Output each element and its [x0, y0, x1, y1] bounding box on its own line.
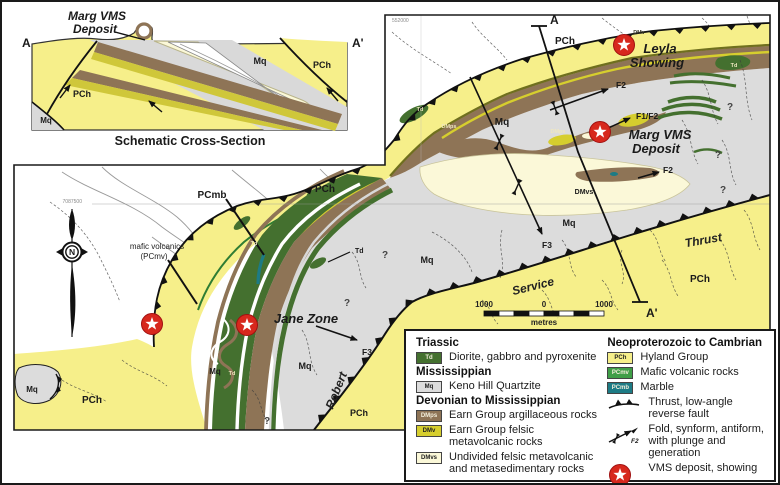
annotation-mafic-line1: mafic volcanics: [130, 242, 184, 251]
unit-label-pcmb: PCmb: [198, 190, 227, 201]
location-label-leyla-2: Showing: [630, 55, 684, 70]
pcmb-dot: [610, 172, 618, 176]
location-label-leyla-1: Leyla: [643, 41, 676, 56]
unit-label-pch-5: PCh: [350, 408, 368, 418]
annotation-mafic-line2: (PCmv): [140, 252, 167, 261]
legend: Triassic Td Diorite, gabbro and pyroxeni…: [404, 329, 776, 482]
legend-column-2: Neoproterozoic to Cambrian PCh Hyland Gr…: [607, 335, 770, 478]
unit-label-mq-4: Mq: [209, 367, 221, 376]
legend-item-pcmv: PCmv Mafic volcanic rocks: [607, 366, 770, 379]
unit-label-td-4: Td: [731, 63, 738, 69]
uncertain-q2: ?: [715, 150, 721, 161]
section-marker-a2: A': [646, 306, 658, 320]
unit-label-td-3: Td: [229, 371, 236, 377]
swatch-pcmv: PCmv: [607, 367, 633, 379]
legend-column-1: Triassic Td Diorite, gabbro and pyroxeni…: [416, 335, 599, 478]
unit-label-mq-1: Mq: [495, 117, 509, 128]
uncertain-q5: ?: [344, 298, 350, 309]
location-label-marg-2: Deposit: [632, 141, 680, 156]
legend-item-vms: VMS deposit, showing: [607, 462, 770, 474]
vms-star-jane-west: [142, 314, 163, 335]
swatch-code-pcmb: PCmb: [612, 385, 629, 391]
legend-item-fold: F2 Fold, synform, antiform, with plunge …: [607, 423, 770, 460]
swatch-mq: Mq: [416, 381, 442, 393]
scale-left: 1000: [475, 300, 493, 309]
legend-label-dmvs: Undivided felsic metavolcanic and metase…: [449, 451, 599, 476]
legend-item-dmps: DMps Earn Group argillaceous rocks: [416, 409, 599, 422]
swatch-td: Td: [416, 352, 442, 364]
unit-label-mq-3: Mq: [421, 255, 434, 265]
legend-heading-neoproterozoic: Neoproterozoic to Cambrian: [607, 337, 770, 349]
xs-deposit-label-1: Marg VMS: [68, 9, 126, 23]
xs-marker-a: A: [22, 36, 31, 50]
swatch-code-dmvs: DMvs: [421, 455, 437, 461]
unit-label-td-1: Td: [417, 107, 424, 113]
legend-label-dmps: Earn Group argillaceous rocks: [449, 409, 597, 421]
legend-heading-mississippian: Mississippian: [416, 366, 599, 378]
north-label: N: [69, 247, 75, 257]
location-label-jane: Jane Zone: [274, 311, 338, 326]
unit-label-td-5: Td: [355, 248, 364, 255]
fold-label-f3-2: F3: [362, 347, 372, 357]
unit-label-mq-5: Mq: [299, 361, 312, 371]
uncertain-q6: ?: [264, 416, 270, 427]
xs-label-pch-right: PCh: [313, 60, 331, 70]
unit-label-pch-2: PCh: [315, 184, 335, 195]
fold-label-f3-1: F3: [542, 240, 552, 250]
swatch-dmvs: DMvs: [416, 452, 442, 464]
legend-heading-devonian: Devonian to Mississippian: [416, 395, 599, 407]
legend-label-thrust: Thrust, low-angle reverse fault: [648, 396, 770, 421]
legend-label-pch: Hyland Group: [640, 351, 708, 363]
legend-label-mq: Keno Hill Quartzite: [449, 380, 541, 392]
xs-marker-a2: A': [352, 36, 364, 50]
thrust-teeth: [375, 153, 382, 160]
uncertain-q1: ?: [727, 102, 733, 113]
swatch-code-pch: PCh: [614, 355, 626, 361]
legend-item-pcmb: PCmb Marble: [607, 381, 770, 394]
legend-item-dmv: DMv Earn Group felsic metavolcanic rocks: [416, 424, 599, 449]
xs-deposit-label-2: Deposit: [73, 22, 118, 36]
scale-right: 1000: [595, 300, 613, 309]
uncertain-q3: ?: [720, 185, 726, 196]
vms-star-leyla: [614, 35, 635, 56]
fold-label-f1f2: F1/F2: [636, 111, 658, 121]
legend-item-pch: PCh Hyland Group: [607, 351, 770, 364]
unit-mq-blob: [15, 365, 61, 404]
xs-label-pch-left: PCh: [73, 89, 91, 99]
unit-label-pch-top: PCh: [555, 36, 575, 47]
unit-label-pch-3: PCh: [690, 274, 710, 285]
legend-label-dmv: Earn Group felsic metavolcanic rocks: [449, 424, 599, 449]
fold-label-f2-1: F2: [616, 80, 626, 90]
grid-northing-label: 7087500: [63, 199, 83, 205]
swatch-code-td: Td: [425, 355, 432, 361]
geologic-map-figure: PCh DMv DMps DMps Mq Mq Mq Mq Mq Mq Td T…: [0, 0, 780, 485]
swatch-code-dmps: DMps: [421, 413, 437, 419]
xs-caption: Schematic Cross-Section: [115, 134, 266, 148]
location-label-marg-1: Marg VMS: [629, 127, 692, 142]
legend-label-td: Diorite, gabbro and pyroxenite: [449, 351, 596, 363]
xs-deposit-nose: [137, 24, 151, 38]
swatch-pcmb: PCmb: [607, 382, 633, 394]
xs-label-mq-left: Mq: [40, 116, 52, 125]
legend-label-pcmv: Mafic volcanic rocks: [640, 366, 738, 378]
legend-item-thrust: Thrust, low-angle reverse fault: [607, 396, 770, 421]
legend-item-td: Td Diorite, gabbro and pyroxenite: [416, 351, 599, 364]
legend-label-vms: VMS deposit, showing: [648, 462, 757, 474]
legend-heading-triassic: Triassic: [416, 337, 599, 349]
legend-label-pcmb: Marble: [640, 381, 674, 393]
unit-label-mq-6: Mq: [26, 385, 38, 394]
unit-label-dmps-1: DMps: [442, 124, 457, 130]
swatch-dmps: DMps: [416, 410, 442, 422]
unit-label-td-2: Td: [251, 241, 258, 247]
unit-label-dmvs: DMvs: [575, 189, 594, 196]
legend-item-mq: Mq Keno Hill Quartzite: [416, 380, 599, 393]
cross-section-inset: Marg VMS Deposit A A' PCh Mq Mq PCh Sche…: [22, 9, 364, 148]
unit-label-dmv-top: DMv: [633, 30, 646, 36]
fold-symbol-tag: F2: [631, 438, 639, 445]
uncertain-q4: ?: [382, 250, 388, 261]
swatch-dmv: DMv: [416, 425, 442, 437]
unit-label-mq-2: Mq: [563, 218, 576, 228]
swatch-code-pcmv: PCmv: [612, 370, 629, 376]
legend-label-fold: Fold, synform, antiform, with plunge and…: [648, 423, 770, 460]
swatch-pch: PCh: [607, 352, 633, 364]
unit-label-dmps-2: DMps: [551, 129, 566, 135]
fold-label-f2-2: F2: [663, 165, 673, 175]
legend-item-dmvs: DMvs Undivided felsic metavolcanic and m…: [416, 451, 599, 476]
swatch-code-mq: Mq: [425, 384, 434, 390]
vms-star-jane-east: [237, 315, 258, 336]
scale-zero: 0: [542, 300, 547, 309]
scale-unit: metres: [531, 318, 558, 327]
xs-label-mq-right: Mq: [254, 56, 267, 66]
unit-label-pch-4: PCh: [82, 395, 102, 406]
swatch-code-dmv: DMv: [423, 428, 436, 434]
grid-easting-label: 552000: [392, 18, 409, 24]
vms-star-marg: [590, 122, 611, 143]
